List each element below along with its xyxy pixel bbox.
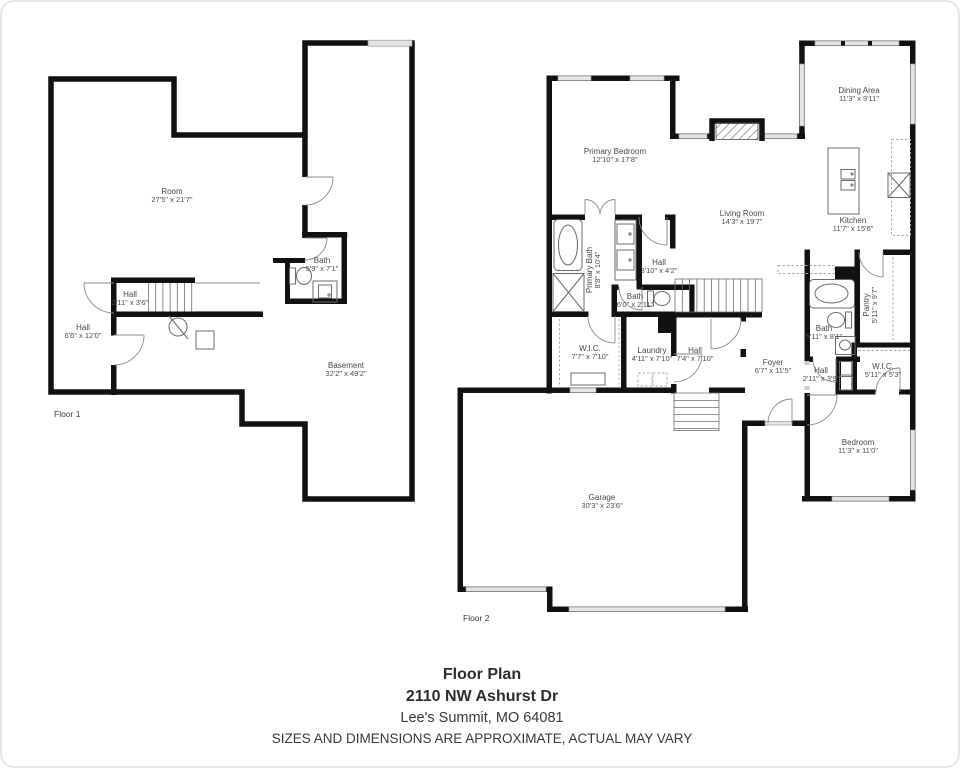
footer-city-line: Lee's Summit, MO 64081	[2, 710, 960, 726]
footer-disclaimer: SIZES AND DIMENSIONS ARE APPROXIMATE, AC…	[2, 731, 960, 746]
floor2-stairs	[674, 279, 762, 431]
garage-door	[569, 607, 725, 612]
washer-icon	[638, 373, 652, 386]
window	[368, 40, 412, 46]
floor1-outline	[51, 40, 412, 499]
floor2-interior-walls	[547, 215, 914, 395]
front-door-threshold	[765, 422, 792, 426]
dryer-icon	[653, 373, 667, 386]
floor2-windows	[466, 41, 915, 612]
floor-plan-drawing	[2, 2, 960, 662]
linen-closet	[840, 362, 853, 376]
floor1-caption: Floor 1	[54, 409, 80, 419]
floor2-exterior-walls	[458, 41, 916, 613]
toilet-icon	[648, 291, 654, 306]
footer-title: Floor Plan	[2, 666, 960, 684]
garage-door	[466, 587, 546, 592]
closet-shelf	[571, 373, 605, 385]
fireplace-icon	[712, 121, 762, 141]
toilet-icon	[828, 313, 845, 328]
floor2-caption: Floor 2	[463, 613, 489, 623]
footer-address: 2110 NW Ashurst Dr	[2, 688, 960, 706]
floor-plan-image: Room27'5" x 21'7" Bath5'9" x 7'1" Hall2'…	[0, 0, 960, 768]
